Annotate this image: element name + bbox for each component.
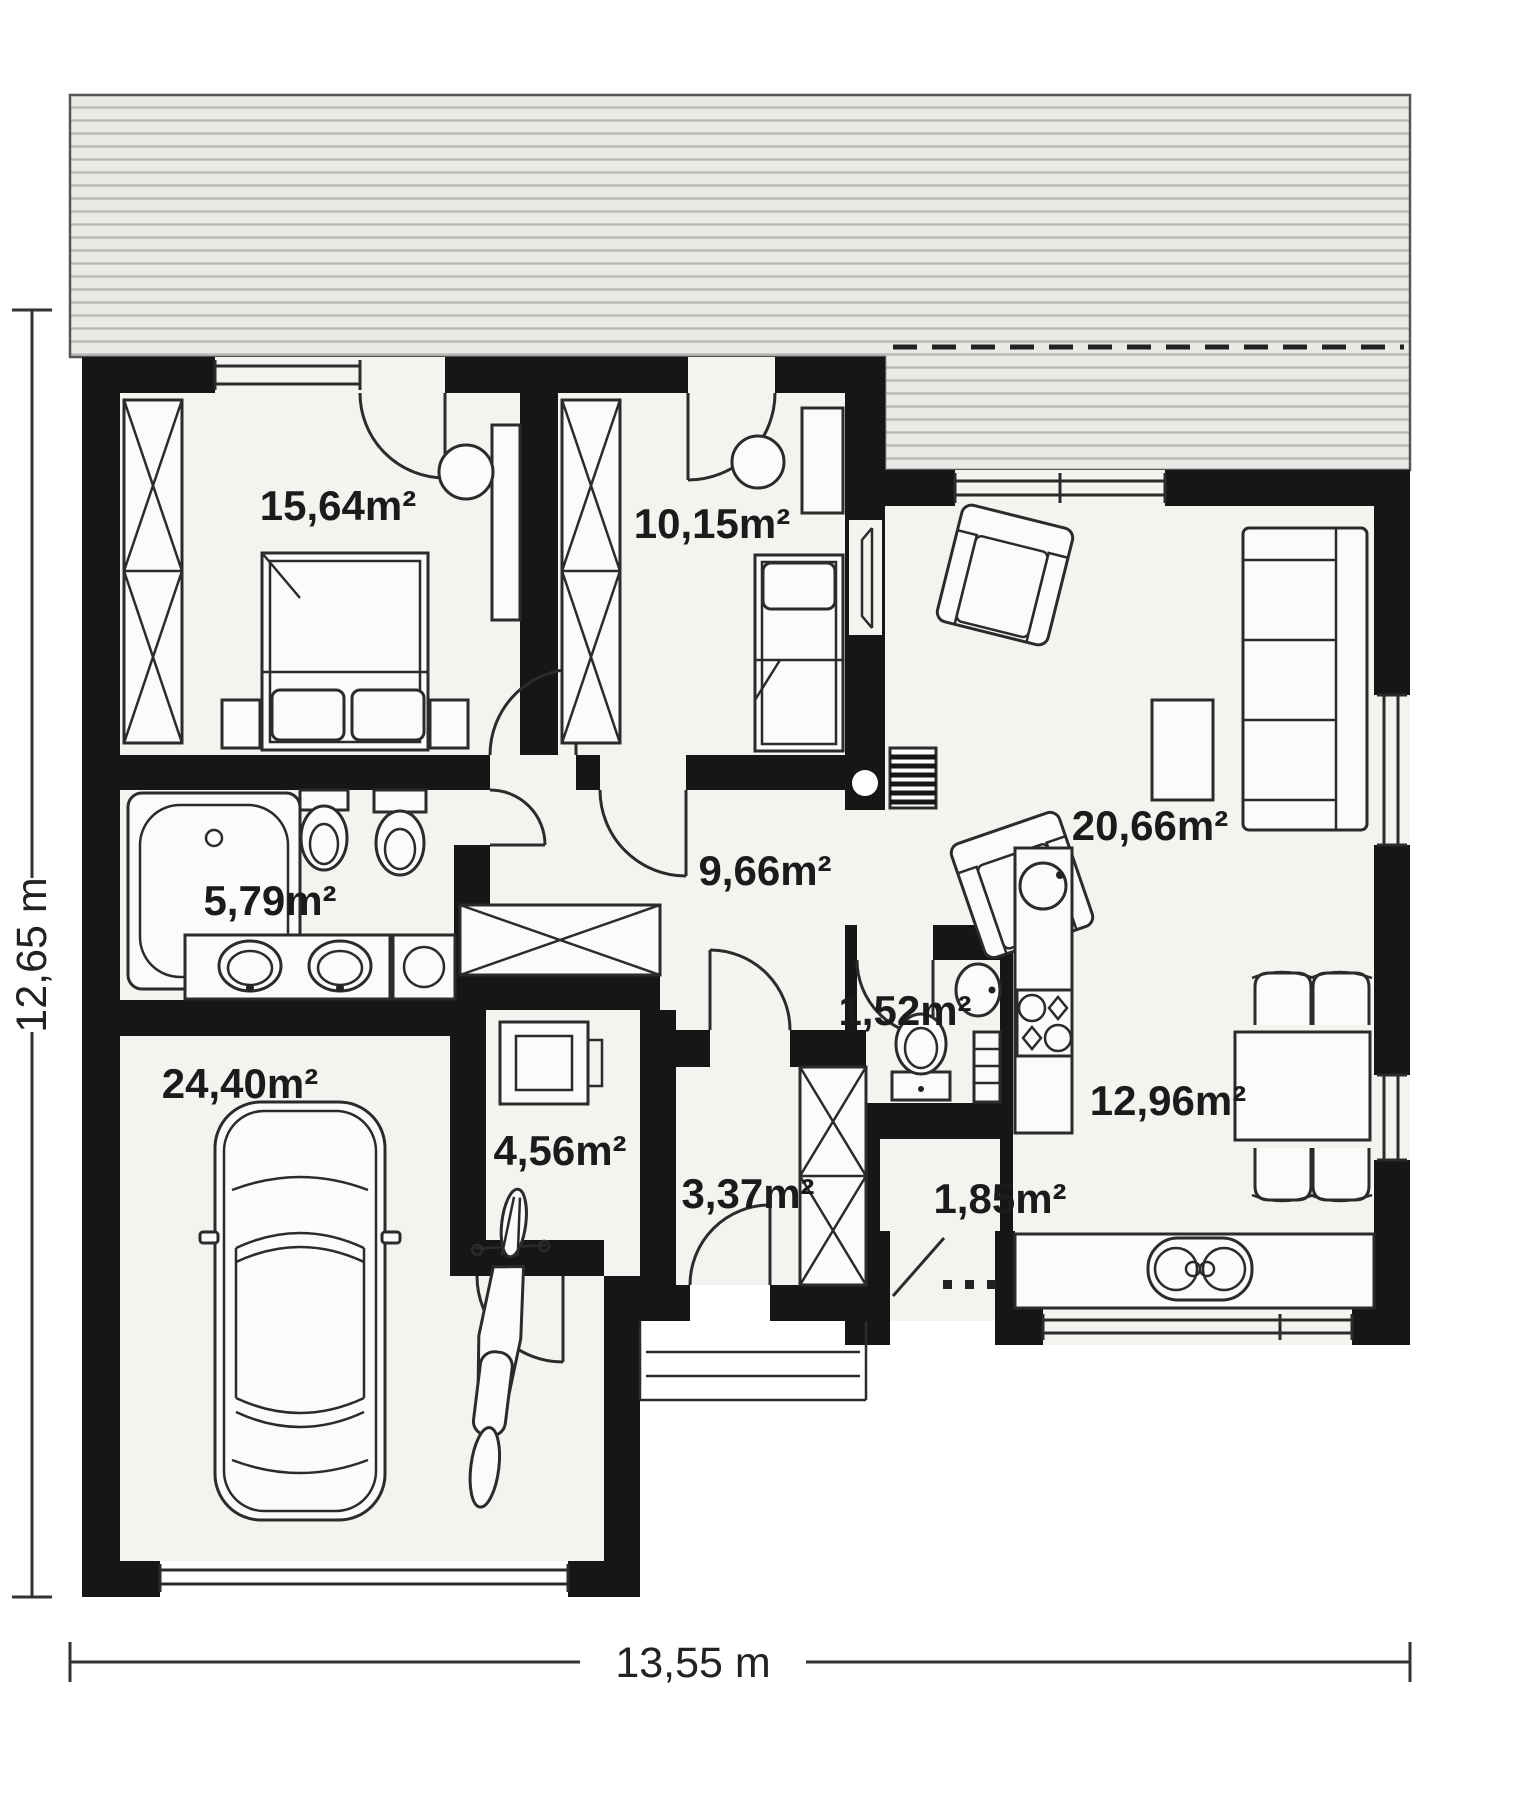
- dining-chair-icon: [1252, 1148, 1314, 1201]
- room-label-bathroom: 5,79m²: [203, 877, 336, 924]
- floor-plan-drawing: 15,64m² 10,15m² 20,66m² 5,79m² 9,66m² 24…: [0, 0, 1536, 1799]
- sofa-icon: [1243, 528, 1367, 830]
- dining-chair-icon: [1252, 972, 1314, 1025]
- room-label-bedroom-main: 15,64m²: [260, 482, 416, 529]
- nightstand-icon: [222, 700, 260, 748]
- double-bed-icon: [262, 553, 428, 750]
- chair-icon: [439, 445, 493, 499]
- porch-steps: [640, 1321, 866, 1400]
- cooktop-icon: [1017, 990, 1072, 1056]
- tv-icon: [849, 520, 882, 635]
- wardrobe-icon: [124, 400, 182, 743]
- single-bed-icon: [755, 555, 843, 751]
- car-icon: [200, 1102, 400, 1520]
- washing-machine-icon: [393, 935, 455, 999]
- pantry-threshold-dot: [965, 1280, 974, 1289]
- dining-table-icon: [1235, 1032, 1370, 1140]
- bidet-icon: [300, 790, 348, 870]
- coffee-table-icon: [1152, 700, 1213, 800]
- garage-door: [160, 1564, 568, 1592]
- room-label-kitchen-dining: 12,96m²: [1090, 1077, 1246, 1124]
- toilet-icon: [374, 790, 426, 875]
- kitchen-sink-icon: [1020, 863, 1066, 909]
- vanity-sinks-icon: [185, 935, 390, 999]
- room-label-utility-room: 4,56m²: [493, 1127, 626, 1174]
- boiler-icon: [500, 1022, 602, 1104]
- nightstand-icon: [430, 700, 468, 748]
- pantry-threshold-dot: [943, 1280, 952, 1289]
- room-label-garage: 24,40m²: [162, 1060, 318, 1107]
- room-label-vestibule: 3,37m²: [681, 1170, 814, 1217]
- entry-porch: [640, 1321, 866, 1400]
- dimension-height-label: 12,65 m: [8, 877, 56, 1032]
- room-label-pantry: 1,85m²: [933, 1175, 1066, 1222]
- double-sink-icon: [1148, 1238, 1252, 1300]
- pantry-threshold-dot: [987, 1280, 996, 1289]
- radiator-icon: [890, 748, 936, 808]
- room-label-bedroom-second: 10,15m²: [634, 500, 790, 547]
- room-label-hall: 9,66m²: [698, 847, 831, 894]
- desk-icon: [802, 408, 843, 513]
- shelf-rack-icon: [974, 1032, 1000, 1102]
- room-label-living-room: 20,66m²: [1072, 802, 1228, 849]
- chimney-flue-icon: [852, 770, 878, 796]
- wardrobe-icon: [562, 400, 620, 743]
- sink-tap: [989, 987, 996, 994]
- room-label-wc: 1,52m²: [838, 987, 971, 1034]
- hall-closet-icon: [460, 905, 660, 975]
- chair-icon: [732, 436, 784, 488]
- dining-chair-icon: [1310, 972, 1372, 1025]
- desk-icon: [492, 425, 520, 620]
- floor-plan-page: 15,64m² 10,15m² 20,66m² 5,79m² 9,66m² 24…: [0, 0, 1536, 1799]
- dining-chair-icon: [1310, 1148, 1372, 1201]
- dimension-width-label: 13,55 m: [615, 1639, 770, 1687]
